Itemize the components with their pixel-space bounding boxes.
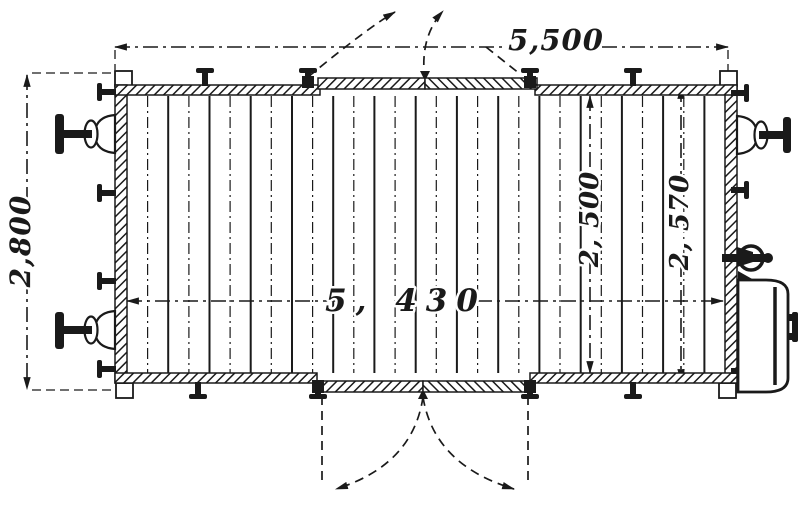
wall-bolt	[97, 360, 116, 378]
dimension-label-overall-length: 5,500	[508, 23, 604, 57]
wall-bolt	[189, 382, 207, 399]
top-door-panel-left	[318, 78, 425, 89]
buffer-shaft	[63, 130, 92, 138]
buffer-housing	[737, 116, 756, 154]
buffer-head	[55, 312, 64, 349]
buffer-left-lower	[55, 311, 115, 349]
wall-bolt	[624, 382, 642, 399]
dimension-label-width-over-walls: 2, 570	[665, 174, 695, 271]
wall-bolt	[624, 68, 642, 86]
floor-planks	[148, 96, 705, 373]
corner-posts	[115, 71, 737, 398]
top-wall-right	[535, 85, 737, 95]
wall-bolts	[97, 68, 749, 399]
left-wall	[115, 85, 127, 383]
corner-post-top-right	[720, 71, 737, 86]
wagon-floor-plan: 5,500 2,800 5, 430 2, 500 2, 570	[0, 0, 800, 506]
dimension-label-interior-width: 2, 500	[575, 171, 605, 268]
coupling-handle-grip	[792, 312, 798, 342]
buffer-left-upper	[55, 114, 115, 154]
wall-bolt	[97, 184, 116, 202]
buffer-shaft	[759, 131, 785, 139]
coupling-pocket-box	[738, 280, 788, 392]
corner-post-top-left	[115, 71, 132, 86]
top-door-swing-arcs	[308, 11, 520, 81]
door-swing-arc	[424, 11, 443, 80]
buffer-head	[55, 114, 64, 154]
bottom-wall-left	[115, 373, 317, 383]
dimension-labels: 5,500 2,800 5, 430 2, 500 2, 570	[4, 23, 695, 319]
door-swing-arc	[308, 12, 395, 77]
bottom-door-panel-left	[317, 381, 423, 392]
door-swing-arc	[336, 397, 423, 489]
corner-post-bottom-left	[116, 383, 133, 398]
buffer-housing	[96, 115, 115, 153]
bottom-door-swing-arcs	[322, 389, 528, 489]
right-wall	[725, 85, 737, 383]
top-wall-left	[115, 85, 320, 95]
wall-bolt	[196, 68, 214, 86]
buffer-housing	[96, 311, 115, 349]
body-walls	[115, 78, 737, 392]
wall-bolt	[97, 272, 116, 290]
dimension-extension-lines	[32, 50, 728, 390]
buffer-shaft	[63, 326, 92, 334]
dimension-label-interior-length: 5, 430	[325, 283, 487, 319]
bottom-door-panel-right	[423, 381, 530, 392]
bottom-wall-right	[530, 373, 737, 383]
door-swing-arc	[423, 397, 514, 489]
wall-bolt	[97, 83, 116, 101]
buffer-right	[737, 116, 791, 154]
corner-post-bottom-right	[719, 383, 736, 398]
buffer-head	[783, 117, 791, 153]
top-door-panel-right	[425, 78, 537, 89]
dimension-label-overall-width: 2,800	[4, 195, 37, 289]
